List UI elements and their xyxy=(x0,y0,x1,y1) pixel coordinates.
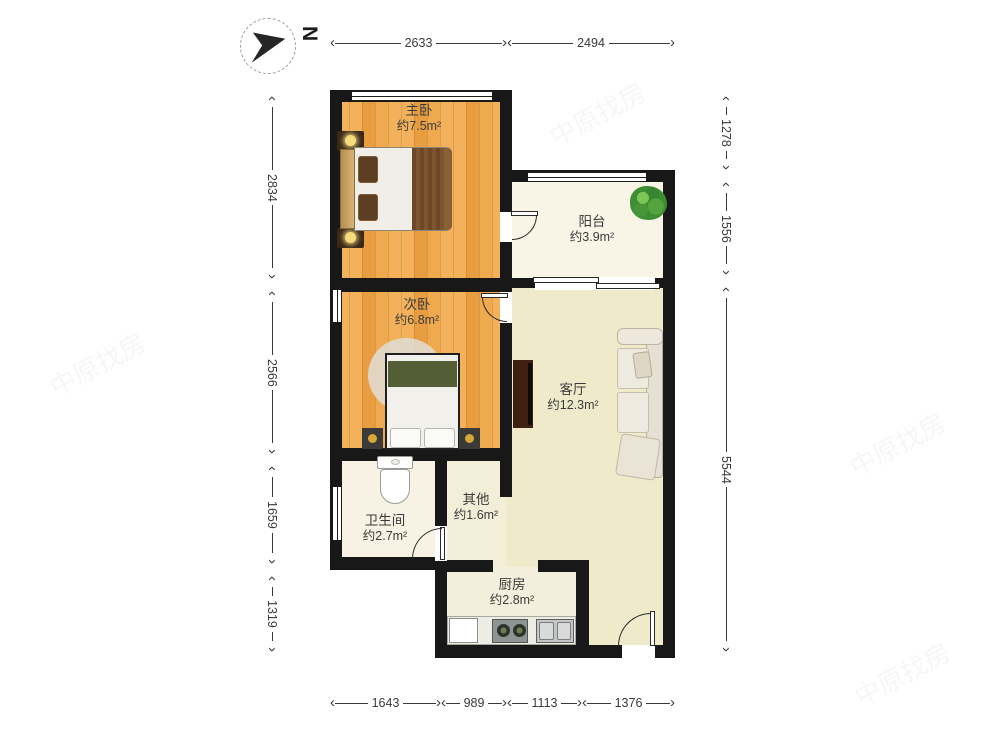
toilet-button xyxy=(391,459,400,465)
master-bedroom-window xyxy=(352,91,492,101)
entrance-door-opening xyxy=(622,645,655,658)
sliding-door-panel xyxy=(533,277,599,283)
second-bedroom-window xyxy=(332,290,342,322)
lamp xyxy=(345,135,356,146)
dimension-top-1: 2633 xyxy=(330,36,507,50)
sink-basin xyxy=(557,622,571,640)
sliding-door-panel xyxy=(596,283,660,289)
wall xyxy=(435,645,622,658)
compass xyxy=(240,18,296,74)
wall xyxy=(500,240,512,293)
balcony-window xyxy=(528,172,646,182)
room-label-other: 其他约1.6m² xyxy=(421,492,531,524)
dimension-right-1: 1278 xyxy=(719,90,733,176)
dimension-bottom-3: 1113 xyxy=(507,696,582,710)
dimension-left-4: 1319 xyxy=(265,570,279,658)
sink-basin xyxy=(539,622,554,640)
dimension-left-3: 1659 xyxy=(265,460,279,570)
floor-plan: 中原找房 中原找房 中原找房 中原找房 中原找房 N xyxy=(0,0,1000,750)
pillow xyxy=(390,428,421,448)
dimension-left-2: 2566 xyxy=(265,285,279,460)
room-label-kitchen: 厨房约2.8m² xyxy=(457,577,567,609)
dimension-left-1: 2834 xyxy=(265,90,279,285)
wall xyxy=(500,90,512,212)
watermark: 中原找房 xyxy=(542,73,651,155)
sofa-chaise xyxy=(615,433,661,481)
dimension-right-2: 1556 xyxy=(719,176,733,281)
bed-headboard xyxy=(340,149,355,229)
kitchen-cabinet xyxy=(449,618,478,643)
north-label: N xyxy=(297,26,321,41)
sofa-cushion xyxy=(632,351,652,379)
dimension-bottom-4: 1376 xyxy=(582,696,675,710)
pillow xyxy=(424,428,455,448)
watermark: 中原找房 xyxy=(842,403,951,485)
lamp xyxy=(345,232,356,243)
balcony-door-opening xyxy=(500,212,512,242)
wall xyxy=(500,322,512,497)
dimension-right-3: 5544 xyxy=(719,281,733,658)
lamp xyxy=(465,434,474,443)
dimension-bottom-2: 989 xyxy=(441,696,507,710)
blanket-fold xyxy=(444,148,452,230)
room-label-master: 主卧约7.5m² xyxy=(364,103,474,135)
wall xyxy=(576,560,589,645)
stove-burner xyxy=(513,624,526,637)
wall xyxy=(512,278,535,288)
room-label-balcony: 阳台约3.9m² xyxy=(537,214,647,246)
pillow xyxy=(358,156,378,183)
stove-burner xyxy=(497,624,510,637)
toilet-bowl xyxy=(380,469,410,504)
dimension-top-2: 2494 xyxy=(507,36,675,50)
bed-blanket xyxy=(388,361,457,387)
wall xyxy=(663,170,675,658)
wall xyxy=(330,278,512,292)
dimension-bottom-1: 1643 xyxy=(330,696,441,710)
sofa-armrest xyxy=(617,328,663,345)
watermark: 中原找房 xyxy=(42,323,151,405)
lamp xyxy=(368,434,377,443)
wall xyxy=(435,560,447,658)
room-label-living: 客厅约12.3m² xyxy=(518,382,628,414)
watermark: 中原找房 xyxy=(847,633,956,715)
pillow xyxy=(358,194,378,221)
room-label-second: 次卧约6.8m² xyxy=(362,297,472,329)
wall xyxy=(441,560,493,572)
